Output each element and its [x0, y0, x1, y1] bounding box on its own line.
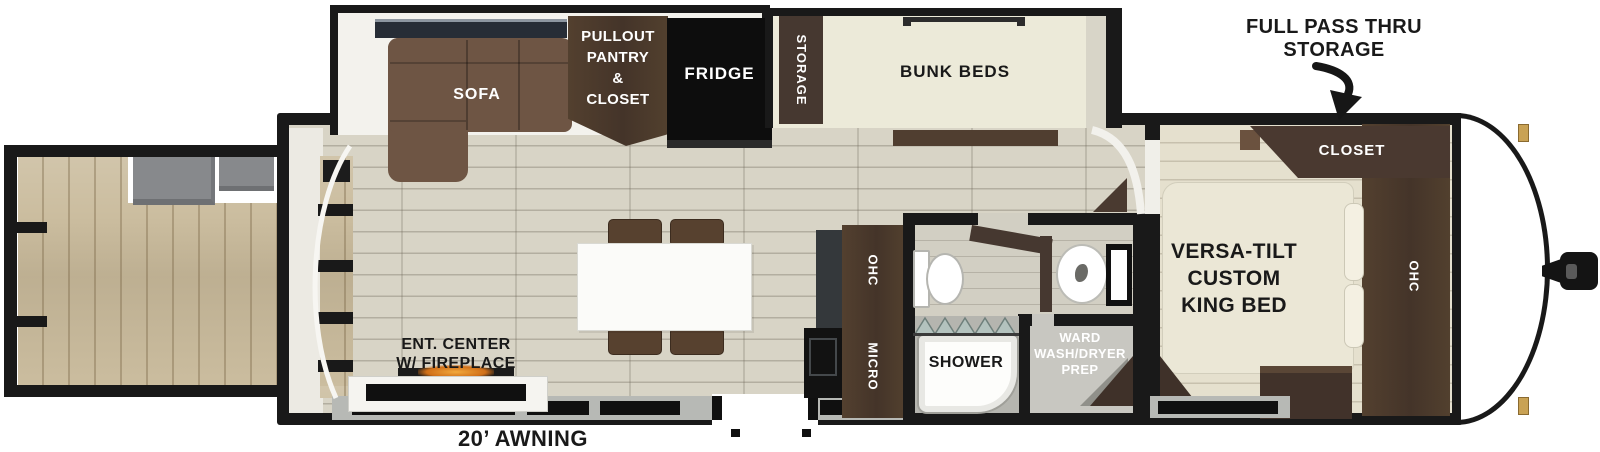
deck-rail-left: [4, 145, 17, 397]
bath-shelf-side: [1040, 236, 1052, 312]
rear-door-bar: [318, 312, 353, 324]
underbunk-cabinet: [893, 130, 1058, 146]
bunk-wall-shade: [1086, 16, 1106, 128]
sofa-seam: [390, 62, 570, 64]
entry-door-jamb: [808, 396, 818, 420]
pantry-label-line2: PANTRY: [570, 47, 666, 68]
dining-table: [577, 243, 752, 331]
window: [820, 400, 844, 415]
pass-thru-label-line1: FULL PASS THRU: [1204, 16, 1464, 39]
shower-pan: [917, 334, 1019, 414]
entry-step: [802, 429, 811, 437]
kitchen-counter: [816, 230, 842, 328]
shower-glass-icon: [913, 314, 1019, 336]
sofa: [388, 38, 572, 132]
shower-label: SHOWER: [917, 354, 1015, 373]
fridge-label: FRIDGE: [669, 64, 770, 84]
deck-step: [133, 156, 215, 205]
cap-hinge: [1518, 397, 1529, 415]
awning-label: 20’ AWNING: [413, 426, 633, 452]
window: [600, 401, 680, 415]
sofa-seam: [518, 40, 520, 130]
bathroom-door-opening: [978, 213, 1028, 227]
pantry-label-line1: PULLOUT: [570, 26, 666, 47]
closet-label: CLOSET: [1272, 142, 1432, 160]
kitchen-ohc-label: OHC: [866, 249, 881, 293]
bunk-handle-end: [903, 17, 911, 26]
sofa-seam: [466, 40, 468, 130]
rear-door-bar: [318, 260, 353, 272]
dining-chair: [670, 327, 724, 355]
deck-rail-rung: [17, 316, 47, 327]
bunk-handle: [903, 17, 1025, 22]
cap-hinge: [1518, 124, 1529, 142]
bunk-handle-end: [1017, 17, 1025, 26]
sofa-seam: [390, 120, 466, 122]
ward-label-line2: WASH/DRYER: [1024, 346, 1136, 362]
bedroom-door-opening: [1145, 140, 1160, 214]
pillow: [1344, 203, 1364, 281]
ent-center-label-line1: ENT. CENTER: [348, 336, 564, 355]
pass-thru-arrow-icon: [1316, 66, 1362, 120]
pantry-label-line4: CLOSET: [570, 89, 666, 110]
floorplan: ENT. CENTER W/ FIREPLACE OHC MICRO SOFA …: [0, 0, 1600, 452]
bedroom-ohc-label: OHC: [1407, 255, 1422, 299]
pass-thru-label-line2: STORAGE: [1204, 39, 1464, 62]
window: [1158, 401, 1278, 414]
ent-center-label: ENT. CENTER W/ FIREPLACE: [348, 336, 564, 374]
entry-door-opening: [712, 394, 818, 425]
pantry-label: PULLOUT PANTRY & CLOSET: [570, 26, 666, 110]
kitchen-micro-label: MICRO: [866, 337, 881, 397]
window: [375, 19, 567, 38]
entry-step: [731, 429, 740, 437]
bunk-beds-label: BUNK BEDS: [860, 62, 1050, 82]
rear-door-window: [323, 160, 350, 182]
storage-label: STORAGE: [793, 25, 809, 115]
deck-step: [219, 156, 274, 191]
ent-center-label-line2: W/ FIREPLACE: [348, 355, 564, 374]
dining-chair: [608, 327, 662, 355]
sofa-label: SOFA: [412, 86, 542, 105]
medicine-cabinet-mirror: [1111, 250, 1127, 300]
king-bed-label-line2: CUSTOM: [1152, 265, 1316, 292]
deck-rail-bottom: [4, 385, 278, 397]
deck-rail-top: [4, 145, 278, 157]
entry-door-jamb: [712, 396, 722, 420]
kitchen-range-top: [809, 338, 837, 376]
tv: [366, 384, 526, 401]
toilet-bowl: [926, 253, 964, 305]
deck-rail-rung: [17, 222, 47, 233]
king-bed-label-line3: KING BED: [1152, 292, 1316, 319]
pantry-label-line3: &: [570, 68, 666, 89]
hitch-slot: [1566, 264, 1577, 279]
pillow: [1344, 284, 1364, 348]
front-cap: [1456, 113, 1550, 425]
king-bed-label-line1: VERSA-TILT: [1152, 238, 1316, 265]
king-bed-label: VERSA-TILT CUSTOM KING BED: [1152, 238, 1316, 319]
ward-label-line1: WARD: [1024, 330, 1136, 346]
pass-thru-label: FULL PASS THRU STORAGE: [1204, 16, 1464, 62]
rear-door-bar: [318, 204, 353, 216]
ward-door-opening: [1032, 314, 1054, 326]
